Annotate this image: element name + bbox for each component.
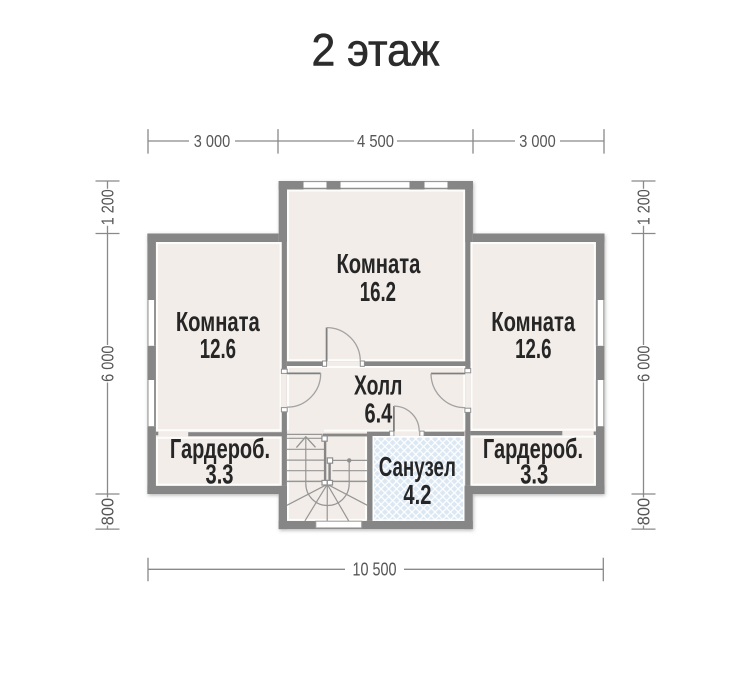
svg-text:12.6: 12.6	[515, 333, 551, 365]
svg-text:16.2: 16.2	[360, 276, 396, 308]
svg-text:Холл: Холл	[354, 370, 402, 401]
svg-text:10 500: 10 500	[353, 560, 397, 580]
svg-text:Санузел: Санузел	[379, 452, 456, 484]
svg-text:3.3: 3.3	[520, 459, 548, 490]
svg-text:2 этаж: 2 этаж	[312, 26, 441, 76]
svg-text:3 000: 3 000	[194, 132, 230, 152]
svg-text:800: 800	[633, 498, 654, 525]
svg-text:4.2: 4.2	[403, 480, 431, 511]
svg-text:1 200: 1 200	[634, 189, 654, 225]
svg-text:4 500: 4 500	[357, 132, 394, 152]
svg-text:12.6: 12.6	[200, 333, 236, 365]
svg-text:3.3: 3.3	[206, 459, 234, 490]
svg-text:6 000: 6 000	[98, 346, 118, 382]
svg-text:3 000: 3 000	[519, 132, 555, 152]
svg-text:6 000: 6 000	[634, 346, 654, 382]
svg-text:800: 800	[97, 498, 118, 525]
svg-text:1 200: 1 200	[98, 189, 118, 225]
svg-text:6.4: 6.4	[365, 398, 393, 429]
